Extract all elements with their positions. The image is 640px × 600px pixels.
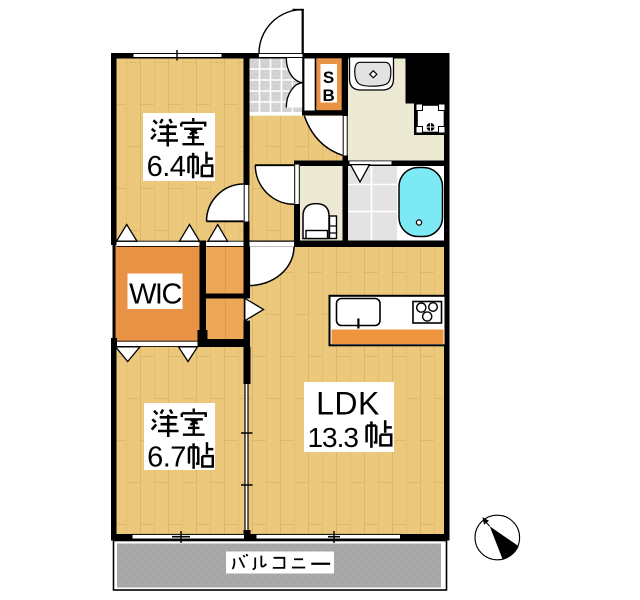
svg-text:B: B — [322, 86, 334, 105]
svg-text:6.7: 6.7 — [147, 442, 186, 474]
svg-text:6.4: 6.4 — [147, 151, 186, 183]
svg-text:LDK: LDK — [316, 386, 380, 422]
svg-text:S: S — [323, 68, 334, 87]
svg-text:WIC: WIC — [129, 279, 181, 311]
svg-text:13.3: 13.3 — [307, 422, 358, 453]
